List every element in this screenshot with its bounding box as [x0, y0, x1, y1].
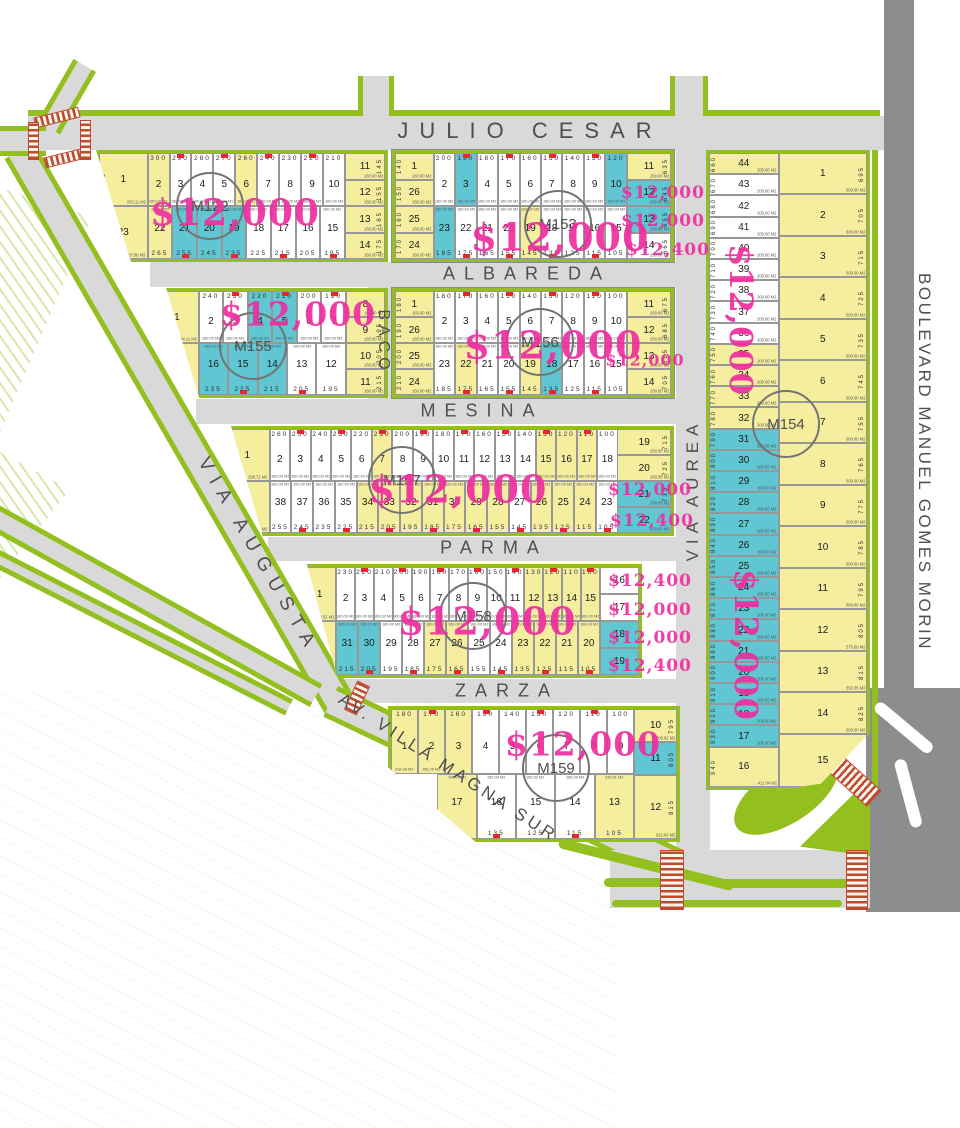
lot-corner-marker — [549, 154, 556, 158]
lot-M154-43: 67043200.00 M2 — [709, 174, 779, 195]
price-label: $12,000 — [722, 244, 760, 396]
lot-dimension: 215 — [359, 524, 376, 531]
lot-M153-26: 15026160.00 M2 — [395, 180, 434, 207]
lot-number: 12 — [643, 325, 654, 336]
lot-dimension: 920 — [711, 707, 717, 723]
lot-corner-marker — [399, 568, 406, 572]
price-label: $12,000 — [608, 628, 692, 648]
lot-M157-18: 10018160.00 M2 — [597, 429, 617, 481]
lot-number: 18 — [602, 439, 613, 480]
lot-dimension: 115 — [577, 524, 593, 531]
lot-dimension: 815 — [859, 664, 865, 680]
lot-M157-25: 25125160.00 M2 — [552, 481, 574, 533]
lot-dimension: 825 — [859, 705, 865, 721]
lot-number: 12 — [817, 625, 828, 636]
lot-number: 4 — [318, 439, 324, 480]
lot-area: 234.11 M2 — [178, 338, 197, 342]
lot-corner-marker — [361, 568, 368, 572]
lot-area: 160.00 M2 — [412, 174, 431, 178]
lot-dimension: 140 — [517, 431, 534, 438]
lot-column: 14511160.00 M215512160.00 M216513160.00 … — [345, 153, 385, 259]
lot-dimension: 705 — [859, 207, 865, 223]
lot-area: 200.00 M2 — [757, 720, 776, 724]
lot-dimension: 170 — [450, 569, 467, 576]
road-stub-north-2 — [670, 76, 708, 116]
lot-area: 152.09 M2 — [487, 776, 505, 780]
lot-dimension: 210 — [375, 569, 392, 576]
lot-number: 43 — [738, 179, 749, 190]
lot-dimension: 840 — [711, 537, 717, 553]
lot-area: 160.00 M2 — [435, 200, 453, 204]
lot-dimension: 660 — [711, 156, 717, 172]
lot-M155-13: 13205160.00 M2 — [287, 343, 316, 395]
lot-corner-marker — [309, 154, 316, 158]
lot-number: 13 — [296, 344, 307, 385]
lot-dimension: 775 — [859, 498, 865, 514]
lot-area: 160.00 M2 — [324, 337, 342, 341]
lot-area: 160.00 M2 — [364, 227, 383, 231]
lot-area: 160.00 M2 — [293, 483, 311, 487]
lot-number: 1 — [174, 312, 180, 323]
lot-dimension: 785 — [859, 539, 865, 555]
lot-column: 4901283.11 M250023287.88 M2 — [99, 153, 148, 259]
lot-area: 160.00 M2 — [202, 337, 220, 341]
lot-number: 17 — [171, 364, 182, 375]
lot-number: 8 — [820, 459, 826, 470]
lot-area: 160.00 M2 — [557, 475, 575, 479]
lot-dimension: 235 — [316, 524, 333, 531]
price-label: $12,000 — [150, 192, 320, 234]
lot-dimension: 860 — [711, 580, 717, 596]
lot-M154-1: 6951600.00 M2 — [779, 153, 867, 194]
lot-area: 160.00 M2 — [291, 475, 309, 479]
lot-dimension: 160 — [522, 155, 539, 162]
road-stub-west — [0, 126, 46, 156]
lot-corner-marker — [550, 568, 557, 572]
lot-number: 6 — [527, 163, 533, 205]
lot-M153-23: 23185160.00 M2 — [434, 206, 455, 259]
lot-corner-marker — [231, 254, 238, 258]
lot-number: 13 — [817, 666, 828, 677]
lot-number: 11 — [818, 583, 828, 594]
lot-M157-24: 24115160.00 M2 — [574, 481, 596, 533]
lot-dimension: 695 — [859, 166, 865, 182]
lot-dimension: 720 — [711, 283, 717, 299]
lot-area: 160.00 M2 — [332, 475, 350, 479]
lot-M154-9: 7759600.00 M2 — [779, 485, 867, 526]
lot-number: 5 — [506, 163, 512, 205]
lot-M154-29: 81029200.00 M2 — [709, 471, 779, 492]
lot-corner-marker — [463, 390, 470, 394]
lot-area: 160.00 M2 — [554, 483, 572, 487]
lot-corner-marker — [429, 710, 436, 714]
crosswalk-nw-4 — [80, 120, 91, 160]
lot-M157-19: 71519200.00 M2 — [617, 429, 671, 455]
lot-M156-2: 1802160.00 M2 — [434, 291, 455, 343]
lot-dimension: 815 — [669, 799, 675, 815]
lot-dimension: 765 — [859, 456, 865, 472]
lot-area: 600.00 M2 — [846, 355, 865, 359]
lot-corner-marker — [265, 154, 272, 158]
lot-dimension: 160 — [476, 431, 493, 438]
crosswalk-interchange-1 — [660, 850, 684, 910]
lot-area: 160.00 M2 — [300, 337, 318, 341]
plat-map: JULIO CESAR ALBAREDA MESINA PARMA ZARZA … — [0, 0, 960, 1128]
lot-number: 10 — [360, 351, 371, 362]
lot-number: 4 — [483, 719, 489, 773]
lot-M153-4: 1804160.00 M2 — [477, 153, 498, 206]
lot-area: 160.00 M2 — [435, 208, 453, 212]
lot-number: 28 — [738, 497, 749, 508]
lot-dimension: 725 — [859, 290, 865, 306]
lot-M122-23: 50023287.88 M2 — [99, 206, 148, 259]
lot-area: 225.81 M2 — [605, 776, 623, 780]
lot-area: 600.00 M2 — [846, 189, 865, 193]
lot-M122-14: 17514160.00 M2 — [345, 233, 385, 260]
lot-area: 160.00 M2 — [337, 483, 355, 487]
lot-area: 160.00 M2 — [598, 475, 616, 479]
lot-area: 160.00 M2 — [478, 208, 496, 212]
lot-area: 160.00 M2 — [412, 338, 431, 342]
lot-number: 5 — [820, 334, 826, 345]
lot-M156-24: 21024160.00 M2 — [395, 369, 434, 395]
lot-corner-marker — [537, 710, 544, 714]
lot-M158-31: 31215160.00 M2 — [336, 621, 358, 675]
price-label: $12,000 — [621, 211, 705, 231]
lot-dimension: 230 — [282, 155, 299, 162]
lot-area: 200.00 M2 — [757, 212, 776, 216]
lot-corner-marker — [502, 430, 509, 434]
lot-number: 13 — [359, 214, 370, 225]
lot-row-top: 2002160.00 M21903160.00 M21804160.00 M21… — [434, 153, 627, 206]
lot-dimension: 175 — [446, 524, 463, 531]
lot-area: 160.00 M2 — [435, 345, 453, 349]
lot-corner-marker — [543, 430, 550, 434]
lot-number: 37 — [297, 482, 308, 523]
lot-area: 160.00 M2 — [336, 615, 354, 619]
lot-M159-4: 1504 — [472, 709, 499, 774]
lot-area: 200.00 M2 — [650, 312, 669, 316]
lot-dimension: 705 — [663, 374, 669, 390]
lot-M153-24: 17024160.00 M2 — [395, 233, 434, 260]
lot-corner-marker — [240, 390, 247, 394]
lot-number: 14 — [817, 708, 828, 719]
street-label-boulevard: BOULEVARD MANUEL GOMES MORIN — [914, 273, 934, 651]
lot-number: 1 — [412, 299, 418, 310]
lot-dimension: 715 — [859, 249, 865, 265]
lot-number: 15 — [817, 755, 828, 766]
price-label: $12,000 — [608, 600, 692, 620]
lot-number: 30 — [738, 455, 749, 466]
street-label-zarza: ZARZA — [455, 681, 559, 702]
lot-dimension: 510 — [157, 309, 163, 325]
lot-number: 11 — [644, 299, 654, 310]
lot-dimension: 830 — [711, 516, 717, 532]
lot-column: 1401160.00 M215026160.00 M216025160.00 M… — [395, 153, 434, 259]
lot-dimension: 550 — [305, 586, 311, 602]
lot-number: 23 — [439, 344, 450, 385]
lot-M157-16: 12016160.00 M2 — [556, 429, 576, 481]
lot-dimension: 210 — [397, 374, 403, 390]
lot-M154-26: 84026200.00 M2 — [709, 535, 779, 556]
lot-M154-10: 78510600.00 M2 — [779, 526, 867, 567]
lot-dimension: 185 — [436, 250, 453, 257]
lot-area: 200.00 M2 — [757, 296, 776, 300]
lot-M154-16: 94016411.04 M2 — [709, 747, 779, 787]
road-albareda — [150, 262, 706, 287]
lot-dimension: 635 — [663, 158, 669, 174]
lot-M159-12: 81512612.66 M2 — [634, 775, 677, 839]
lot-corner-marker — [461, 430, 468, 434]
lot-corner-marker — [473, 528, 480, 532]
lot-area: 575.69 M2 — [846, 646, 865, 650]
lot-M154-4: 7254600.00 M2 — [779, 277, 867, 318]
lot-dimension: 210 — [326, 155, 343, 162]
lot-number: 11 — [360, 377, 370, 388]
lot-corner-marker — [330, 254, 337, 258]
lot-area: 600.00 M2 — [846, 521, 865, 525]
lot-number: 7 — [820, 417, 826, 428]
lot-number: 31 — [738, 434, 749, 445]
price-label: $12,000 — [605, 351, 684, 370]
lot-dimension: 280 — [194, 155, 211, 162]
lot-dimension: 930 — [711, 728, 717, 744]
lot-M157-35: 35225160.00 M2 — [335, 481, 357, 533]
lot-dimension: 155 — [471, 666, 488, 673]
lot-M158-3: 2203160.00 M2 — [355, 567, 374, 621]
street-label-julio-cesar: JULIO CESAR — [397, 118, 662, 144]
lot-dimension: 300 — [150, 155, 167, 162]
lot-area: 200.00 M2 — [650, 450, 669, 454]
lot-M153-1: 1401160.00 M2 — [395, 153, 434, 180]
lot-corner-marker — [343, 528, 350, 532]
lot-corner-marker — [420, 430, 427, 434]
price-label: $12,000 — [220, 295, 376, 334]
lot-dimension: 195 — [323, 386, 340, 393]
lot-area: 600.00 M2 — [846, 272, 865, 276]
lot-corner-marker — [586, 670, 593, 674]
lot-M154-42: 68042200.00 M2 — [709, 195, 779, 216]
lot-dimension: 160 — [479, 293, 496, 300]
lot-dimension: 105 — [608, 386, 625, 393]
lot-number: 12 — [650, 802, 661, 813]
lot-area: 200.00 M2 — [757, 275, 776, 279]
lot-dimension: 155 — [377, 185, 383, 201]
lot-M157-38: 38255160.00 M2 — [270, 481, 292, 533]
street-label-baco: BACO — [374, 309, 392, 374]
lot-area: 160.00 M2 — [312, 475, 330, 479]
lot-dimension: 155 — [490, 524, 507, 531]
green-strip-top-2 — [392, 110, 674, 116]
lot-number: 42 — [738, 201, 749, 212]
lot-dimension: 810 — [711, 474, 717, 490]
lot-dimension: 180 — [396, 711, 413, 718]
lot-number: 25 — [409, 214, 420, 225]
lot-dimension: 685 — [663, 322, 669, 338]
lot-M154-11: 79511884.66 M2 — [779, 568, 867, 609]
lot-M156-14: 70514200.00 M2 — [627, 369, 671, 395]
lot-dimension: 880 — [711, 622, 717, 638]
lot-number: 14 — [643, 377, 654, 388]
lot-dimension: 240 — [203, 293, 220, 300]
lot-area: 160.00 M2 — [581, 615, 599, 619]
lot-dimension: 940 — [711, 759, 717, 775]
lot-corner-marker — [572, 834, 579, 838]
lot-number: 2 — [277, 439, 283, 480]
lot-dimension: 200 — [394, 431, 411, 438]
lot-dimension: 190 — [397, 322, 403, 338]
lot-M122-13: 16513160.00 M2 — [345, 206, 385, 233]
lot-corner-marker — [560, 528, 567, 532]
lot-dimension: 700 — [711, 240, 717, 256]
lot-number: 38 — [275, 482, 286, 523]
lot-M158-2: 2302160.00 M2 — [336, 567, 355, 621]
lot-dimension: 245 — [201, 250, 218, 257]
lot-corner-marker — [430, 528, 437, 532]
lot-dimension: 160 — [450, 711, 467, 718]
lot-dimension: 755 — [859, 415, 865, 431]
lot-area: 600.00 M2 — [846, 563, 865, 567]
lot-corner-marker — [177, 154, 184, 158]
lot-area: 160.00 M2 — [271, 475, 289, 479]
lot-area: 200.00 M2 — [757, 466, 776, 470]
lot-dimension: 115 — [559, 666, 575, 673]
lot-area: 200.00 M2 — [757, 190, 776, 194]
lot-number: 2 — [820, 210, 826, 221]
lot-area: 160.00 M2 — [412, 254, 431, 258]
road-stub-north-1 — [358, 76, 394, 116]
lot-dimension: 170 — [397, 238, 403, 254]
lot-number: 1 — [820, 168, 826, 179]
lot-number: 1 — [412, 161, 418, 172]
lot-number: 19 — [639, 437, 650, 448]
lot-M157-4: 2404160.00 M2 — [311, 429, 331, 481]
lot-area: 200.00 M2 — [757, 508, 776, 512]
lot-dimension: 140 — [522, 293, 539, 300]
lot-M154-44: 66044200.00 M2 — [709, 153, 779, 174]
lot-M155-12: 12195160.00 M2 — [316, 343, 345, 395]
lot-M158-15: 10015160.00 M2 — [581, 567, 600, 621]
lot-corner-marker — [517, 528, 524, 532]
lot-number: 15 — [585, 577, 596, 620]
lot-number: 12 — [359, 187, 370, 198]
lot-dimension: 145 — [377, 158, 383, 174]
price-label: $12,000 — [505, 725, 661, 764]
lot-number: 26 — [738, 540, 749, 551]
lot-M122-1: 4901283.11 M2 — [99, 153, 148, 206]
lot-area: 160.00 M2 — [580, 623, 598, 627]
lot-number: 2 — [343, 577, 349, 620]
lot-number: 1 — [121, 174, 127, 185]
lot-number: 1 — [245, 450, 251, 461]
lot-dimension: 910 — [711, 686, 717, 702]
street-label-parma: PARMA — [440, 538, 548, 559]
lot-dimension: 225 — [250, 250, 267, 257]
lot-area: 160.00 M2 — [578, 475, 596, 479]
lot-dimension: 190 — [413, 569, 430, 576]
lot-dimension: 260 — [271, 431, 288, 438]
lot-dimension: 740 — [711, 325, 717, 341]
lot-number: 4 — [820, 293, 826, 304]
lot-dimension: 180 — [435, 431, 452, 438]
crosswalk-nw-3 — [28, 122, 39, 160]
lot-M154-41: 69041200.00 M2 — [709, 217, 779, 238]
street-label-albareda: ALBAREDA — [443, 264, 611, 285]
lot-column: 6951600.00 M27052600.00 M27153600.00 M27… — [779, 153, 867, 787]
lot-area: 160.00 M2 — [323, 208, 341, 212]
lot-number: 3 — [298, 439, 304, 480]
lot-corner-marker — [584, 430, 591, 434]
lot-corner-marker — [483, 710, 490, 714]
lot-dimension: 120 — [608, 155, 625, 162]
lot-M158-30: 30205160.00 M2 — [358, 621, 380, 675]
lot-M154-28: 82028200.00 M2 — [709, 492, 779, 513]
lot-M154-14: 82514600.00 M2 — [779, 692, 867, 733]
lot-corner-marker — [549, 292, 556, 296]
lot-area: 550.35 M2 — [846, 687, 865, 691]
lot-area: 200.00 M2 — [650, 390, 669, 394]
lot-corner-marker — [592, 292, 599, 296]
lot-dimension: 745 — [859, 373, 865, 389]
lot-corner-marker — [299, 528, 306, 532]
lot-dimension: 205 — [300, 250, 317, 257]
lot-dimension: 105 — [606, 830, 623, 837]
lot-M155-1: 5101234.11 M2 — [155, 291, 199, 343]
lot-number: 41 — [738, 222, 749, 233]
lot-corner-marker — [506, 154, 513, 158]
median-green-3 — [612, 900, 842, 907]
lot-dimension: 795 — [859, 581, 865, 597]
lot-area: 160.00 M2 — [364, 201, 383, 205]
lot-number: 24 — [579, 482, 590, 523]
lot-dimension: 185 — [436, 386, 453, 393]
lot-dimension: 800 — [711, 452, 717, 468]
lot-number: 2 — [442, 163, 448, 205]
lot-number: 30 — [364, 622, 375, 665]
lot-corner-marker — [338, 430, 345, 434]
lot-area: 160.00 M2 — [364, 390, 383, 394]
price-label: $12,000 — [369, 467, 548, 512]
lot-corner-marker — [506, 292, 513, 296]
lot-dimension: 150 — [397, 185, 403, 201]
lot-area: 884.66 M2 — [846, 604, 865, 608]
lot-number: 36 — [318, 482, 329, 523]
lot-number: 10 — [817, 542, 828, 553]
lot-M156-1: 1801160.00 M2 — [395, 291, 434, 317]
lot-number: 2 — [442, 301, 448, 342]
lot-number: 20 — [639, 463, 650, 474]
lot-dimension: 200 — [436, 155, 453, 162]
lot-corner-marker — [410, 670, 417, 674]
lot-dimension: 710 — [711, 262, 717, 278]
lot-dimension: 530 — [227, 447, 233, 463]
lot-corner-marker — [512, 568, 519, 572]
price-label: $12,000 — [398, 599, 577, 644]
lot-number: 20 — [583, 622, 594, 665]
lot-M156-25: 20025160.00 M2 — [395, 343, 434, 369]
lot-area: 160.00 M2 — [500, 208, 518, 212]
price-label: $12,400 — [608, 656, 692, 676]
lot-number: 9 — [592, 163, 598, 205]
lot-area: 200.00 M2 — [757, 318, 776, 322]
crosswalk-interchange-2 — [846, 850, 868, 910]
lot-number: 4 — [380, 577, 386, 620]
lot-area: 200.00 M2 — [757, 530, 776, 534]
lot-M122-12: 15512160.00 M2 — [345, 180, 385, 207]
block-id-circle-M154: M154 — [752, 390, 820, 458]
lot-corner-marker — [437, 568, 444, 572]
lot-area: 600.00 M2 — [846, 480, 865, 484]
